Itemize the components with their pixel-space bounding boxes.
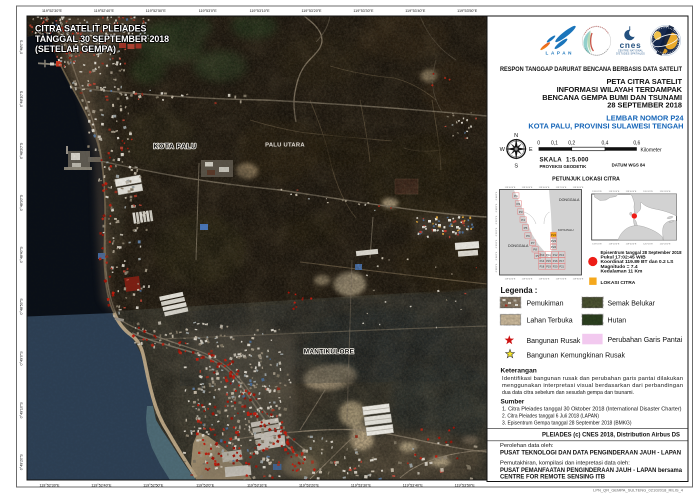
svg-text:119°53'30"E: 119°53'30"E — [351, 484, 372, 488]
svg-text:LOKASI CITRA: LOKASI CITRA — [601, 280, 636, 286]
svg-text:(SETELAH GEMPA): (SETELAH GEMPA) — [35, 44, 116, 54]
svg-text:0: 0 — [537, 141, 540, 147]
svg-text:119°53'10"E: 119°53'10"E — [250, 9, 271, 13]
svg-text:0°64'0"S: 0°64'0"S — [496, 251, 498, 260]
svg-text:0°48'30"S: 0°48'30"S — [20, 194, 24, 211]
svg-text:P11: P11 — [546, 253, 551, 257]
svg-text:S: S — [514, 164, 518, 170]
svg-text:KOTA PALU: KOTA PALU — [153, 144, 196, 151]
svg-text:0°48'0"S: 0°48'0"S — [496, 203, 498, 212]
svg-text:Kilometer: Kilometer — [641, 148, 662, 154]
svg-text:119°53'20"E: 119°53'20"E — [301, 9, 322, 13]
svg-text:28 SEPTEMBER 2018: 28 SEPTEMBER 2018 — [607, 101, 682, 110]
svg-text:0°48'20"S: 0°48'20"S — [20, 142, 24, 159]
svg-text:LPN_QR_GEMPA_SULTENG_02102018_: LPN_QR_GEMPA_SULTENG_02102018_RILIS_4 — [593, 488, 684, 493]
svg-text:120°0'0"E: 120°0'0"E — [643, 191, 653, 193]
svg-text:DONGGALA: DONGGALA — [559, 198, 580, 202]
svg-text:119°52'40"E: 119°52'40"E — [91, 484, 112, 488]
svg-text:Identifikasi bangunan rusak da: Identifikasi bangunan rusak dan perubaha… — [502, 376, 683, 382]
svg-text:E: E — [529, 147, 533, 153]
svg-text:P20: P20 — [553, 265, 558, 269]
svg-text:P22: P22 — [551, 245, 557, 249]
svg-text:1. Citra Pleiades tanggal 30 O: 1. Citra Pleiades tanggal 30 Oktober 201… — [502, 406, 682, 412]
svg-text:119°52'30"E: 119°52'30"E — [39, 484, 60, 488]
svg-text:119°53'30"E: 119°53'30"E — [353, 9, 374, 13]
svg-text:menggunakan interpretasi visua: menggunakan interpretasi visual berdasar… — [502, 383, 683, 389]
svg-text:Kedalaman 11 Km: Kedalaman 11 Km — [601, 268, 644, 274]
svg-text:0°49'20"S: 0°49'20"S — [20, 454, 24, 471]
svg-text:P14: P14 — [540, 259, 545, 263]
svg-text:PUSAT TEKNOLOGI DAN DATA PENGI: PUSAT TEKNOLOGI DAN DATA PENGINDERAAN JA… — [500, 450, 682, 457]
svg-text:Bangunan Rusak: Bangunan Rusak — [527, 338, 581, 345]
svg-text:W: W — [500, 147, 506, 153]
svg-text:119°52'50"E: 119°52'50"E — [143, 484, 164, 488]
svg-text:PLEIADES (c) CNES 2018, Distri: PLEIADES (c) CNES 2018, Distribution Air… — [542, 431, 680, 438]
svg-text:0°49'0"S: 0°49'0"S — [20, 351, 24, 366]
svg-text:D'ETUDES SPATIALES: D'ETUDES SPATIALES — [616, 52, 645, 55]
svg-text:119°0'0"E: 119°0'0"E — [592, 244, 602, 246]
svg-text:P10: P10 — [540, 253, 545, 257]
svg-text:TANGGAL 30 SEPTEMBER 2018: TANGGAL 30 SEPTEMBER 2018 — [35, 34, 169, 44]
svg-text:KOTA PALU: KOTA PALU — [558, 228, 574, 232]
svg-text:0°56'0"S: 0°56'0"S — [496, 227, 498, 236]
svg-text:DATUM WGS 84: DATUM WGS 84 — [612, 162, 646, 167]
svg-text:0,4: 0,4 — [602, 141, 609, 147]
svg-text:119°53'0"E: 119°53'0"E — [199, 9, 218, 13]
svg-text:P5: P5 — [524, 226, 528, 230]
svg-text:119°80'0"E: 119°80'0"E — [573, 187, 584, 189]
svg-text:0°48'0"S: 0°48'0"S — [20, 39, 24, 54]
svg-text:KOTA PALU, PROVINSI SULAWESI T: KOTA PALU, PROVINSI SULAWESI TENGAH — [528, 121, 683, 130]
svg-text:dua data citra sebelum dan ses: dua data citra sebelum dan sesudah gempa… — [502, 390, 634, 396]
svg-text:P2: P2 — [516, 202, 520, 206]
svg-text:119°70'0"E: 119°70'0"E — [556, 187, 567, 189]
svg-text:3. Episentrum Gempa tanggal 28: 3. Episentrum Gempa tanggal 28 September… — [502, 421, 632, 427]
svg-text:119°53'0"E: 119°53'0"E — [196, 484, 215, 488]
svg-text:0°44'0"S: 0°44'0"S — [496, 191, 498, 200]
svg-text:P12: P12 — [553, 253, 558, 257]
svg-text:0,1: 0,1 — [551, 141, 558, 147]
svg-text:119°52'40"E: 119°52'40"E — [94, 9, 115, 13]
svg-text:0°48'50"S: 0°48'50"S — [20, 298, 24, 315]
svg-text:0°52'0"S: 0°52'0"S — [496, 215, 498, 224]
svg-text:PALU UTARA: PALU UTARA — [265, 143, 305, 149]
svg-text:119°53'50"E: 119°53'50"E — [457, 9, 478, 13]
svg-text:119°53'40"E: 119°53'40"E — [405, 9, 426, 13]
svg-text:P1: P1 — [514, 194, 518, 198]
svg-text:PROYEKSI GEODETIK: PROYEKSI GEODETIK — [540, 164, 588, 169]
svg-text:MANTIKULORE: MANTIKULORE — [304, 349, 355, 356]
svg-text:119°40'0"E: 119°40'0"E — [626, 244, 637, 246]
svg-text:119°70'0"E: 119°70'0"E — [556, 279, 567, 281]
svg-text:N: N — [514, 133, 518, 139]
svg-text:119°53'40"E: 119°53'40"E — [403, 484, 424, 488]
svg-text:2. Citra Pleiades tanggal 6 Ju: 2. Citra Pleiades tanggal 6 Juli 2018 (L… — [502, 414, 599, 420]
svg-text:0°48'40"S: 0°48'40"S — [20, 246, 24, 263]
svg-text:119°60'0"E: 119°60'0"E — [539, 279, 550, 281]
svg-text:119°80'0"E: 119°80'0"E — [573, 279, 584, 281]
svg-text:119°52'30"E: 119°52'30"E — [42, 9, 63, 13]
svg-text:CENTRE FOR REMOTE SENSING ITB: CENTRE FOR REMOTE SENSING ITB — [500, 474, 605, 481]
svg-text:Semak Belukar: Semak Belukar — [608, 300, 656, 307]
svg-text:SKALA 1:5.000: SKALA 1:5.000 — [540, 156, 590, 163]
svg-text:119°53'10"E: 119°53'10"E — [247, 484, 268, 488]
svg-text:119°40'0"E: 119°40'0"E — [505, 279, 516, 281]
svg-text:P6: P6 — [526, 234, 530, 238]
svg-text:119°60'0"E: 119°60'0"E — [539, 187, 550, 189]
svg-text:P3: P3 — [519, 210, 523, 214]
svg-text:120°0'0"E: 120°0'0"E — [643, 244, 653, 246]
svg-text:0°48'10"S: 0°48'10"S — [20, 90, 24, 107]
svg-text:119°0'0"E: 119°0'0"E — [592, 191, 602, 193]
svg-text:Perolehan data oleh:: Perolehan data oleh: — [500, 443, 554, 449]
svg-text:0,6: 0,6 — [633, 141, 640, 147]
svg-text:0°60'0"S: 0°60'0"S — [496, 239, 498, 248]
svg-text:P24: P24 — [551, 233, 557, 237]
svg-text:P19: P19 — [546, 265, 551, 269]
svg-text:cnes: cnes — [620, 41, 642, 50]
svg-text:Pemutakhiran, kompilasi dan in: Pemutakhiran, kompilasi dan intepretasi … — [500, 461, 630, 467]
svg-text:0°49'10"S: 0°49'10"S — [20, 402, 24, 419]
svg-text:Pemukiman: Pemukiman — [527, 300, 564, 307]
svg-text:119°20'0"E: 119°20'0"E — [609, 244, 620, 246]
svg-text:119°40'0"E: 119°40'0"E — [505, 187, 516, 189]
svg-text:119°20'0"E: 119°20'0"E — [609, 191, 620, 193]
svg-text:0,2: 0,2 — [568, 141, 575, 147]
svg-text:119°40'0"E: 119°40'0"E — [626, 191, 637, 193]
svg-text:Keterangan: Keterangan — [501, 368, 537, 375]
svg-text:P4: P4 — [521, 218, 525, 222]
svg-text:P18: P18 — [540, 265, 545, 269]
svg-text:Hutan: Hutan — [608, 318, 627, 325]
svg-text:P16: P16 — [553, 259, 558, 263]
svg-text:Lahan Terbuka: Lahan Terbuka — [527, 318, 573, 325]
svg-text:P8: P8 — [533, 248, 537, 252]
svg-text:LAPAN: LAPAN — [546, 50, 574, 55]
svg-text:119°53'50"E: 119°53'50"E — [455, 484, 476, 488]
svg-text:119°50'0"E: 119°50'0"E — [522, 279, 533, 281]
svg-text:P13: P13 — [559, 253, 564, 257]
svg-text:CITRA SATELIT PLEIADES: CITRA SATELIT PLEIADES — [35, 24, 146, 34]
svg-text:119°50'0"E: 119°50'0"E — [522, 187, 533, 189]
svg-text:P23: P23 — [551, 239, 557, 243]
svg-text:Legenda :: Legenda : — [501, 286, 538, 295]
svg-text:0°68'0"S: 0°68'0"S — [496, 263, 498, 272]
svg-text:DONGGALA: DONGGALA — [508, 244, 529, 248]
svg-text:119°52'50"E: 119°52'50"E — [146, 9, 167, 13]
svg-text:120°20'0"E: 120°20'0"E — [660, 244, 671, 246]
svg-text:Bangunan Kemungkinan Rusak: Bangunan Kemungkinan Rusak — [527, 353, 626, 360]
svg-text:Perubahan Garis Pantai: Perubahan Garis Pantai — [608, 337, 683, 344]
svg-text:119°53'20"E: 119°53'20"E — [299, 484, 320, 488]
svg-text:P21: P21 — [559, 265, 564, 269]
svg-text:P15: P15 — [546, 259, 551, 263]
svg-text:RESPON TANGGAP DARURAT BENCANA: RESPON TANGGAP DARURAT BENCANA BERBASIS … — [500, 66, 682, 73]
svg-text:P7: P7 — [531, 241, 535, 245]
svg-text:PETUNJUK LOKASI CITRA: PETUNJUK LOKASI CITRA — [552, 177, 620, 183]
svg-text:P17: P17 — [559, 259, 564, 263]
svg-text:Sumber: Sumber — [501, 398, 525, 405]
svg-text:120°20'0"E: 120°20'0"E — [660, 191, 671, 193]
